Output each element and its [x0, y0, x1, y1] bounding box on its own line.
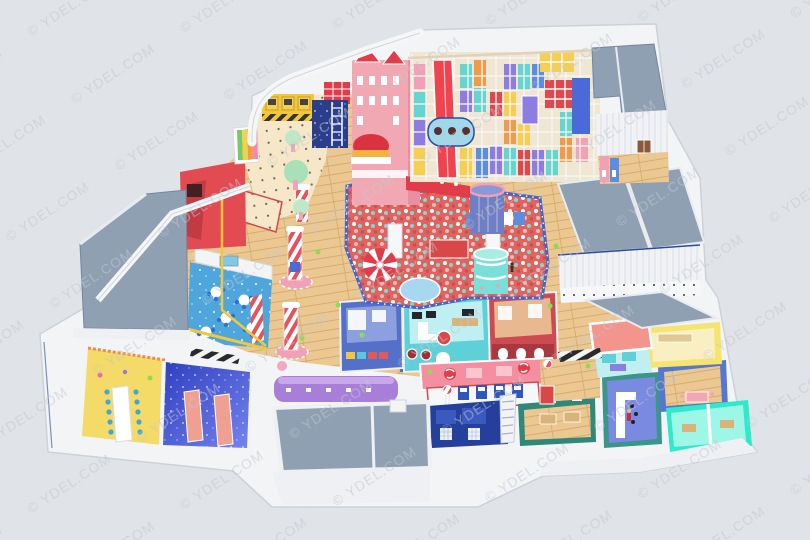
scene-canvas: © YDEL.COM	[0, 0, 810, 540]
watermark-layer	[0, 0, 810, 540]
playground-render: © YDEL.COM	[0, 0, 810, 540]
